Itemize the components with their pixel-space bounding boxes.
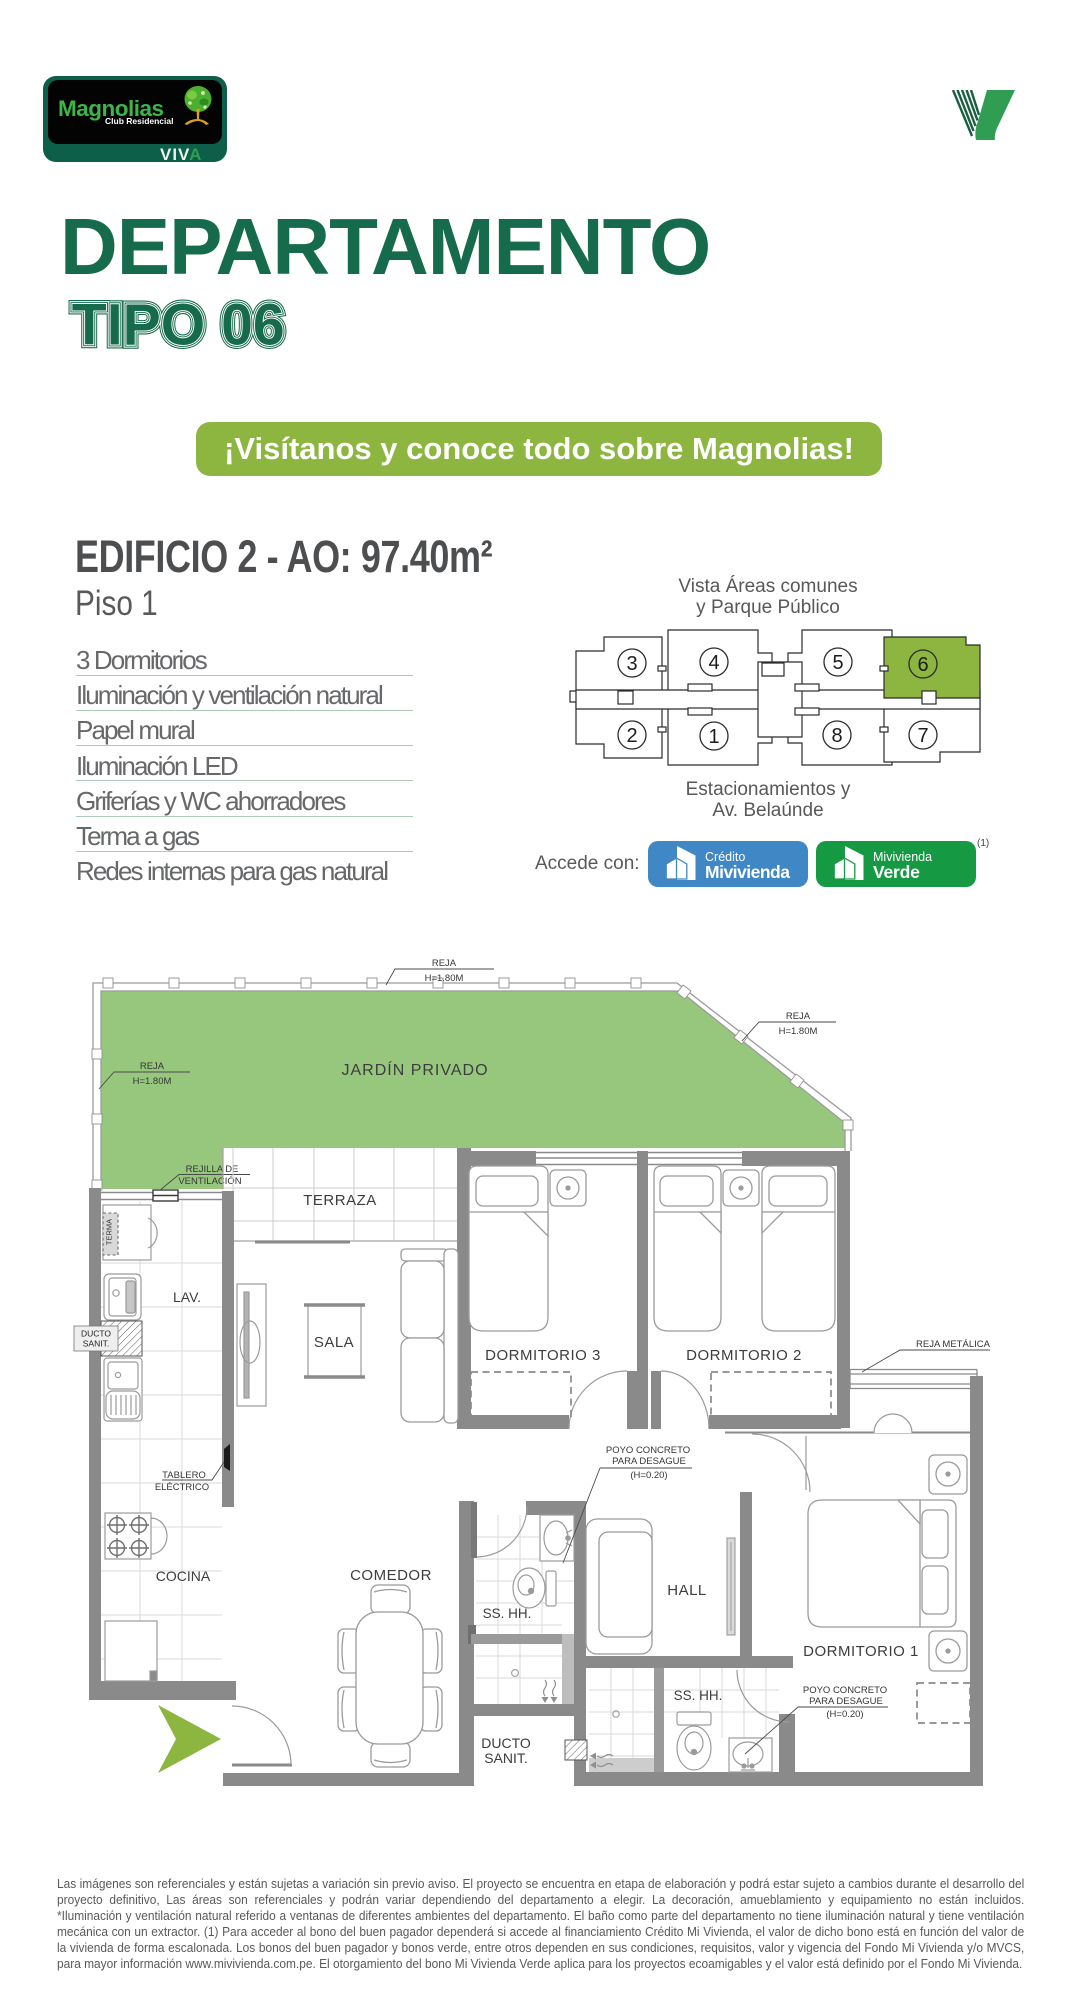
svg-text:POYO CONCRETO: POYO CONCRETO xyxy=(606,1445,690,1456)
svg-text:SANIT.: SANIT. xyxy=(484,1750,528,1766)
svg-text:SS. HH.: SS. HH. xyxy=(483,1606,532,1621)
svg-text:REJA METÁLICA: REJA METÁLICA xyxy=(916,1339,991,1350)
svg-text:COCINA: COCINA xyxy=(156,1568,211,1584)
svg-text:H=1.80M: H=1.80M xyxy=(133,1076,172,1087)
svg-text:REJA: REJA xyxy=(432,958,457,969)
svg-text:DUCTO: DUCTO xyxy=(481,1735,531,1751)
svg-text:DUCTO: DUCTO xyxy=(81,1329,111,1339)
svg-text:PARA DESAGUE: PARA DESAGUE xyxy=(612,1456,686,1467)
svg-text:LAV.: LAV. xyxy=(173,1289,201,1305)
svg-text:DORMITORIO 1: DORMITORIO 1 xyxy=(803,1643,919,1660)
svg-text:JARDÍN PRIVADO: JARDÍN PRIVADO xyxy=(341,1060,488,1079)
svg-text:PARA DESAGUE: PARA DESAGUE xyxy=(809,1696,883,1707)
svg-text:SANIT.: SANIT. xyxy=(83,1339,109,1349)
svg-text:TERMA: TERMA xyxy=(105,1219,114,1245)
svg-text:DORMITORIO 3: DORMITORIO 3 xyxy=(485,1347,601,1364)
svg-text:REJA: REJA xyxy=(786,1011,811,1022)
svg-text:DORMITORIO 2: DORMITORIO 2 xyxy=(686,1347,802,1364)
svg-text:H=1.80M: H=1.80M xyxy=(425,973,464,984)
svg-text:REJILLA DE: REJILLA DE xyxy=(186,1164,239,1175)
svg-text:POYO CONCRETO: POYO CONCRETO xyxy=(803,1685,887,1696)
svg-text:HALL: HALL xyxy=(667,1582,707,1599)
svg-text:REJA: REJA xyxy=(140,1061,165,1072)
svg-text:TABLERO: TABLERO xyxy=(162,1470,206,1481)
svg-text:(H=0.20): (H=0.20) xyxy=(826,1709,863,1720)
svg-text:TERRAZA: TERRAZA xyxy=(303,1192,377,1209)
svg-text:COMEDOR: COMEDOR xyxy=(350,1567,432,1584)
svg-text:H=1.80M: H=1.80M xyxy=(779,1026,818,1037)
svg-text:SALA: SALA xyxy=(314,1334,354,1351)
svg-text:ELÉCTRICO: ELÉCTRICO xyxy=(155,1482,209,1493)
svg-text:VENTILACIÓN: VENTILACIÓN xyxy=(178,1176,241,1187)
svg-text:SS. HH.: SS. HH. xyxy=(674,1688,723,1703)
svg-text:(H=0.20): (H=0.20) xyxy=(630,1470,667,1481)
